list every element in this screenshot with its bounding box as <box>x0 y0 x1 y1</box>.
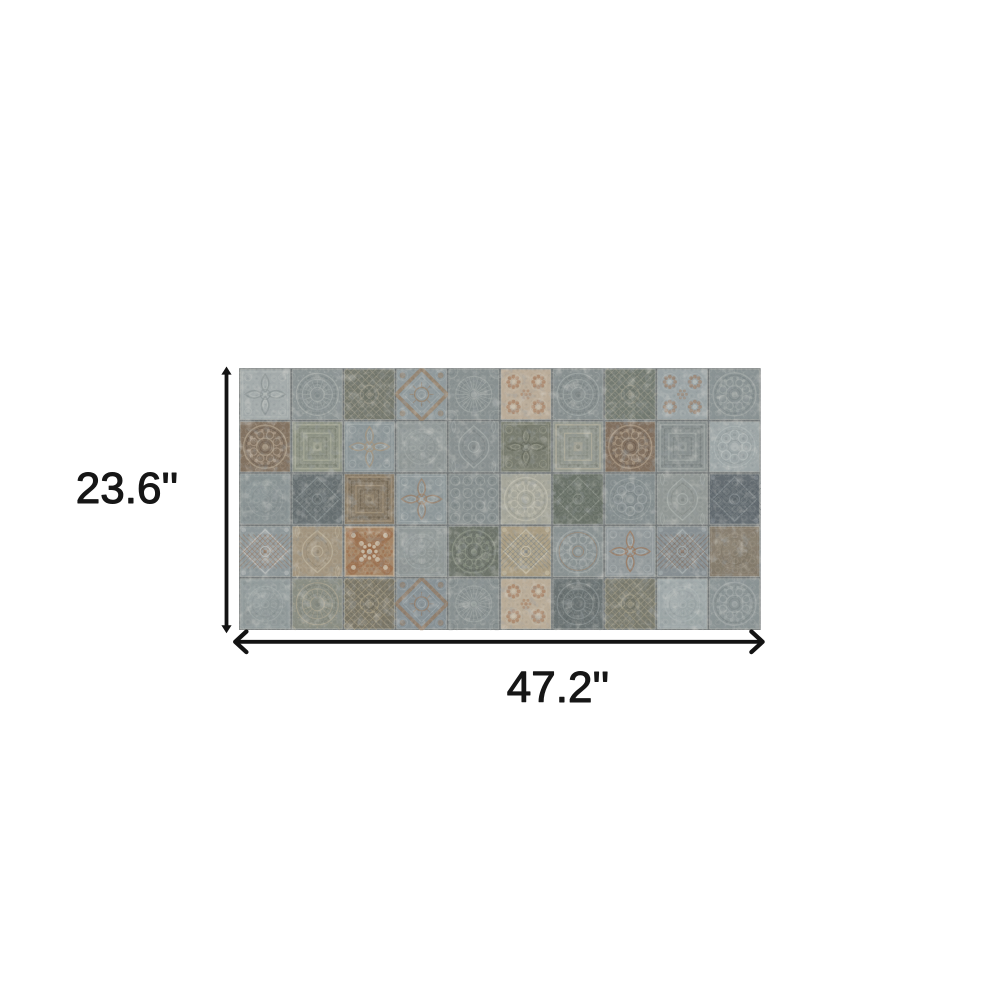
svg-text:47.2'': 47.2'' <box>507 663 609 712</box>
svg-text:23.6'': 23.6'' <box>76 464 178 513</box>
